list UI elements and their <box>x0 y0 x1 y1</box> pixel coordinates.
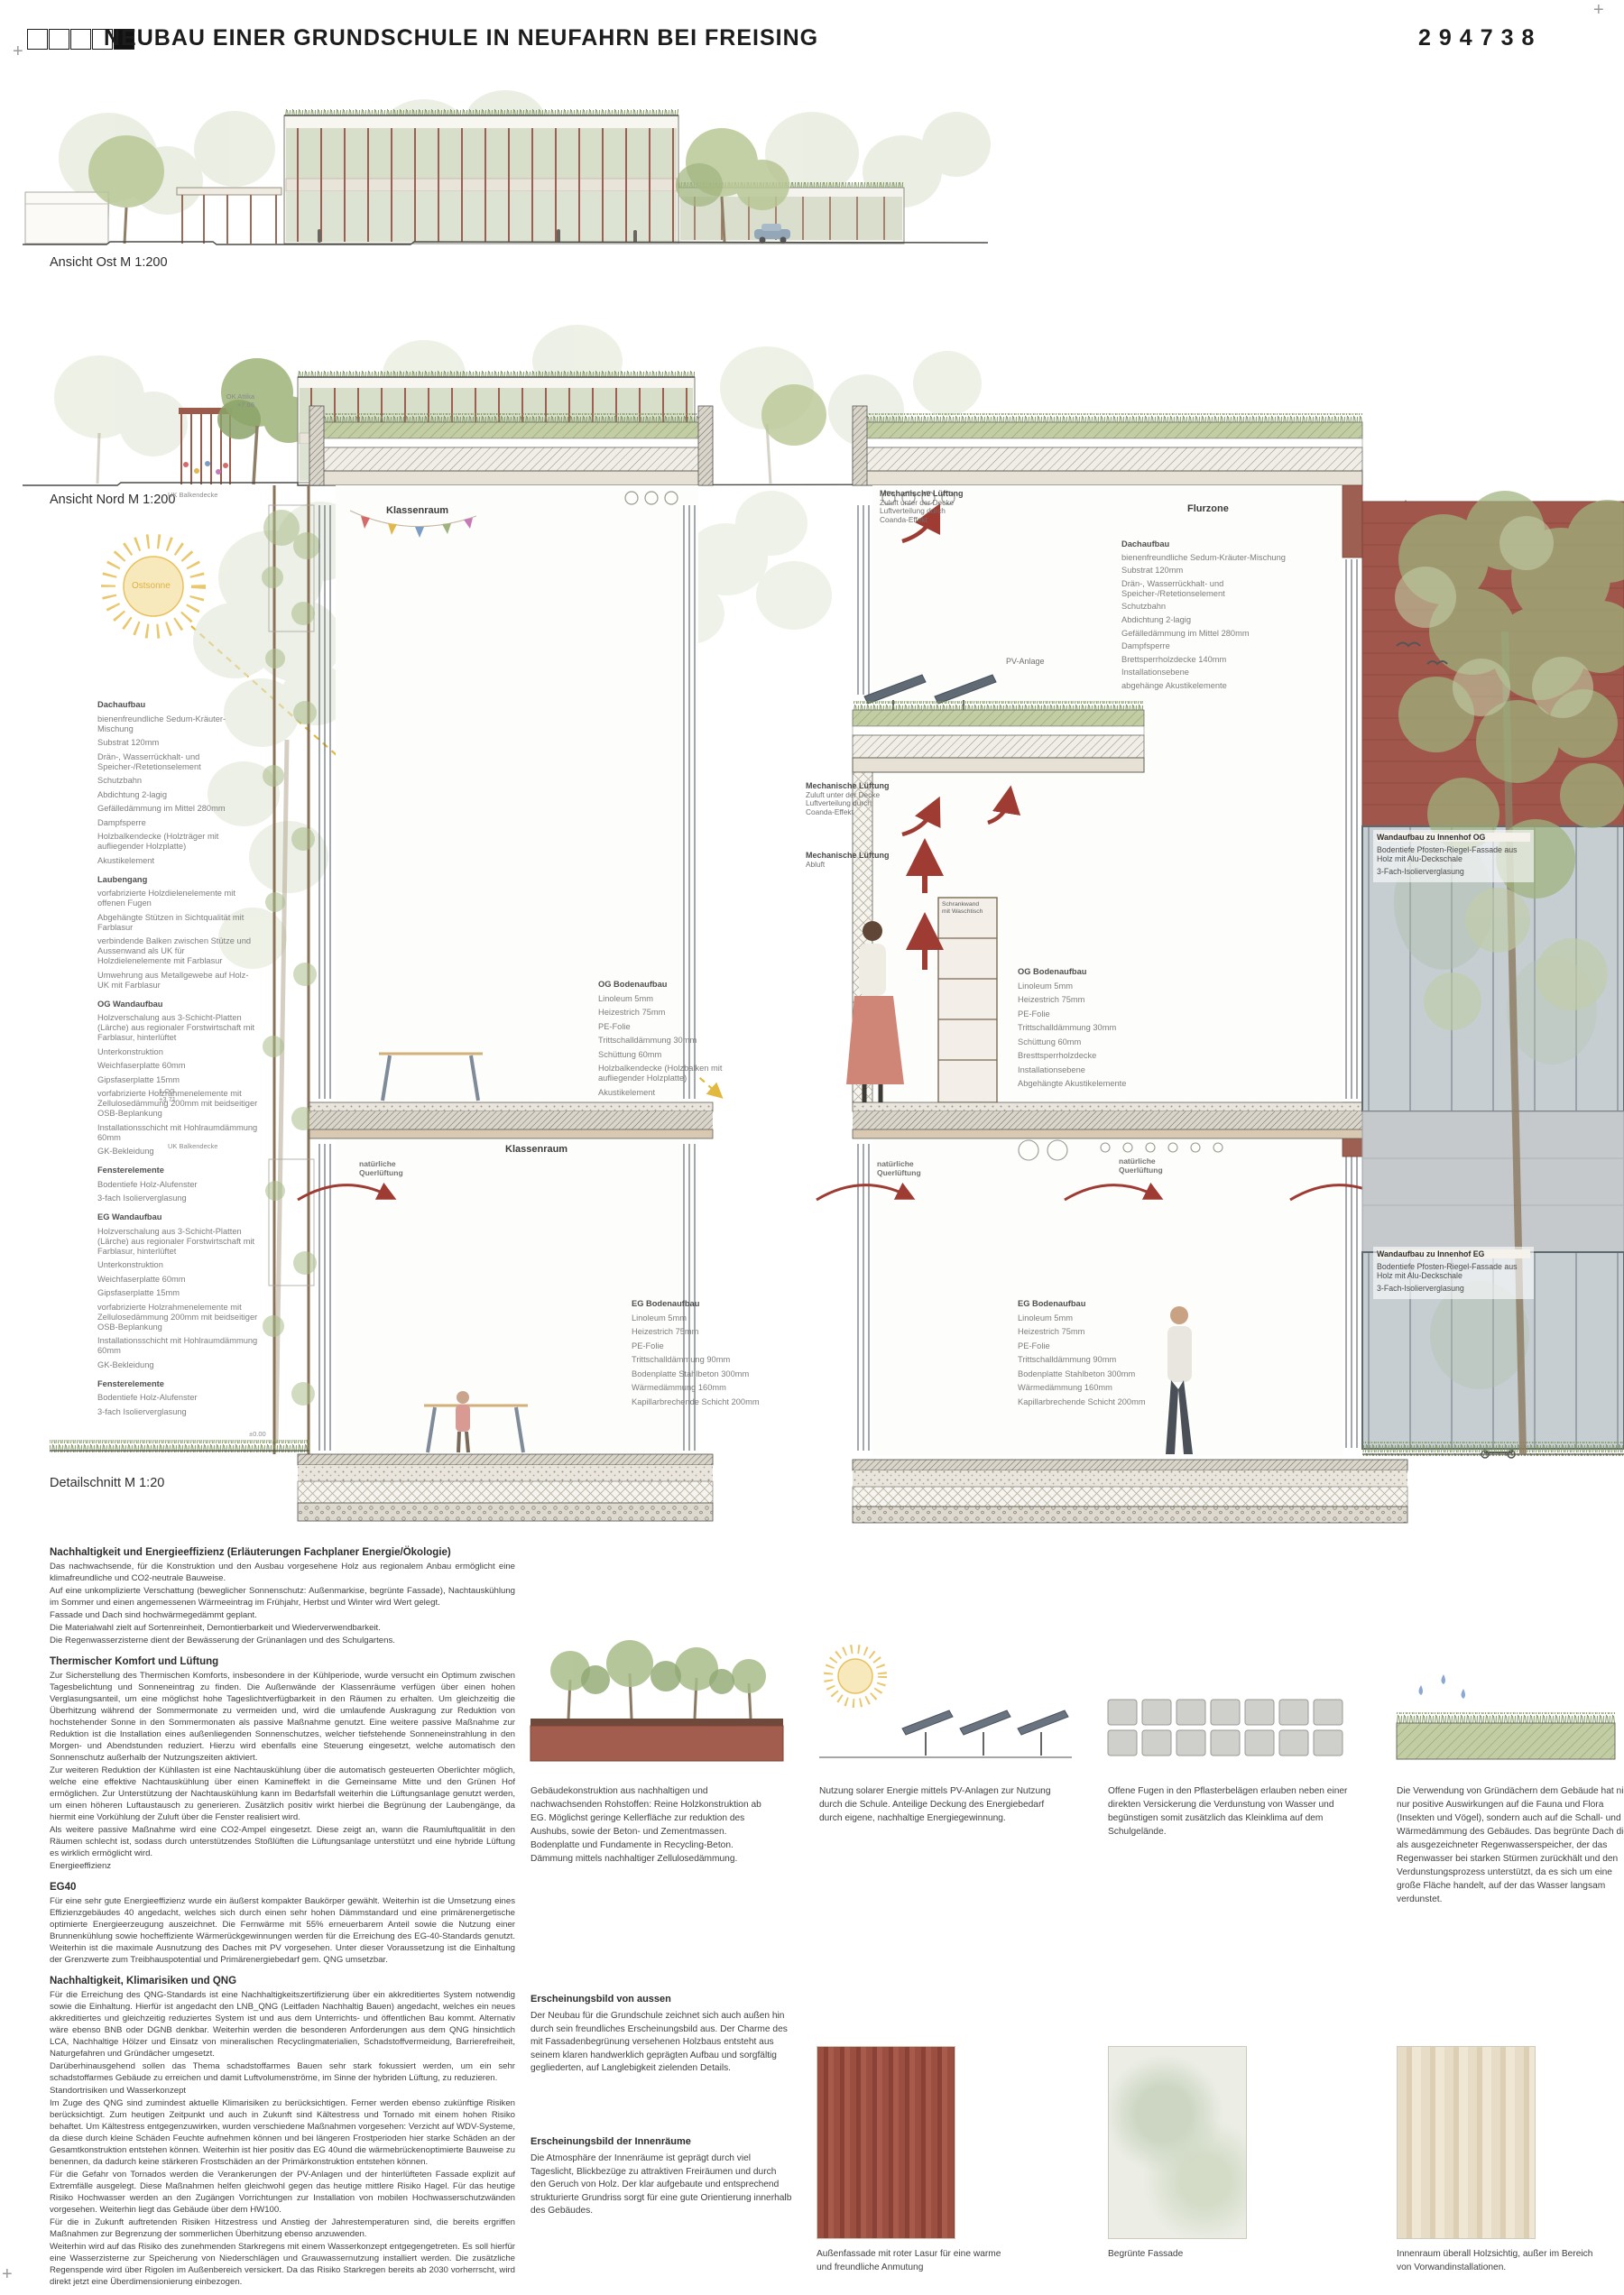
eg-bodenaufbau-left: EG BodenaufbauLinoleum 5mmHeizestrich 75… <box>632 1299 803 1411</box>
erscheinungsbild-innen: Erscheinungsbild der Innenräume Die Atmo… <box>531 2136 794 2218</box>
project-code: 294738 <box>1418 25 1542 51</box>
mech-lueftung-abluft-eg: Mechanische Lüftung Abluft <box>806 851 896 869</box>
diagram-pv-energy <box>819 1649 1072 1757</box>
label-flurzone: Flurzone <box>1187 503 1229 514</box>
label-pv-anlage: PV-Anlage <box>1006 657 1045 666</box>
level-ok-attika: OK Attika+7.66 <box>200 393 254 409</box>
sustainability-essay: Nachhaltigkeit und Energieeffizienz (Erl… <box>50 1537 515 2289</box>
label-klassenraum-og: Klassenraum <box>386 505 448 516</box>
swatch-caption-3: Innenraum überall Holzsichtig, außer im … <box>1397 2248 1609 2274</box>
caption-ansicht-ost: Ansicht Ost M 1:200 <box>50 255 168 270</box>
right-roof-spec-column: Dachaufbaubienenfreundliche Sedum-Kräute… <box>1121 539 1309 695</box>
label-klassenraum-eg: Klassenraum <box>505 1144 567 1155</box>
mech-lueftung-zuluft-eg: Mechanische Lüftung Zuluft unter der Dec… <box>806 781 896 816</box>
level-eg-null: ±0.00 <box>249 1431 266 1439</box>
diagram-permeable-paving <box>1108 1700 1343 1756</box>
level-og1: 1.OG+3.71 <box>159 1088 176 1103</box>
crop-mark-top-left: + <box>13 41 23 62</box>
diagram-caption-3: Offene Fugen in den Pflasterbelägen erla… <box>1108 1784 1350 1839</box>
erscheinungsbild-aussen: Erscheinungsbild von aussen Der Neubau f… <box>531 1994 794 2076</box>
swatch-caption-2: Begrünte Fassade <box>1108 2248 1288 2262</box>
swatch-caption-1: Außenfassade mit roter Lasur für eine wa… <box>817 2248 1010 2274</box>
label-schrankwand: Schrankwand mit Waschtisch <box>942 901 983 915</box>
diagram-caption-1: Gebäudekonstruktion aus nachhaltigen und… <box>531 1784 772 1866</box>
page-title: NEUBAU EINER GRUNDSCHULE IN NEUFAHRN BEI… <box>104 25 818 51</box>
diagram-caption-2: Nutzung solarer Energie mittels PV-Anlag… <box>819 1784 1061 1825</box>
swatch-green-facade <box>1108 2046 1247 2239</box>
detail-section-drawing <box>50 406 1624 1523</box>
wandaufbau-innenhof-og: Wandaufbau zu Innenhof OGBodentiefe Pfos… <box>1373 830 1534 882</box>
label-querlueftung-2: natürlicheQuerlüftung <box>877 1160 921 1177</box>
level-uk-balkendecke-2: UK Balkendecke <box>168 1143 217 1151</box>
label-querlueftung-3: natürlicheQuerlüftung <box>1119 1157 1163 1175</box>
caption-ansicht-nord: Ansicht Nord M 1:200 <box>50 493 175 507</box>
mech-lueftung-zuluft-og: Mechanische Lüftung Zuluft unter der Dec… <box>880 489 970 524</box>
crop-mark-top-right: + <box>1593 0 1604 21</box>
wandaufbau-innenhof-eg: Wandaufbau zu Innenhof EGBodentiefe Pfos… <box>1373 1247 1534 1299</box>
diagram-green-roof <box>1397 1674 1615 1759</box>
presentation-board: + + + NEUBAU EINER GRUNDSCHULE IN NEUFAH… <box>0 0 1624 2295</box>
og-bodenaufbau-left: OG BodenaufbauLinoleum 5mmHeizestrich 75… <box>598 980 770 1101</box>
sun-label: Ostsonne <box>132 581 171 591</box>
swatch-red-facade <box>817 2046 955 2239</box>
diagram-sustainable-construction <box>531 1640 783 1761</box>
label-querlueftung-1: natürlicheQuerlüftung <box>359 1160 403 1177</box>
diagram-caption-4: Die Verwendung von Gründächern dem Gebäu… <box>1397 1784 1624 1906</box>
og-bodenaufbau-right: OG BodenaufbauLinoleum 5mmHeizestrich 75… <box>1018 967 1189 1093</box>
left-spec-column: Dachaufbaubienenfreundliche Sedum-Kräute… <box>97 700 258 1421</box>
swatch-wood-interior <box>1397 2046 1536 2239</box>
crop-mark-bottom-left: + <box>2 2264 13 2285</box>
elevation-ost-drawing <box>23 90 991 244</box>
level-uk-balkendecke-1: UK Balkendecke <box>168 492 217 500</box>
caption-detailschnitt: Detailschnitt M 1:20 <box>50 1476 164 1490</box>
eg-bodenaufbau-right: EG BodenaufbauLinoleum 5mmHeizestrich 75… <box>1018 1299 1189 1411</box>
